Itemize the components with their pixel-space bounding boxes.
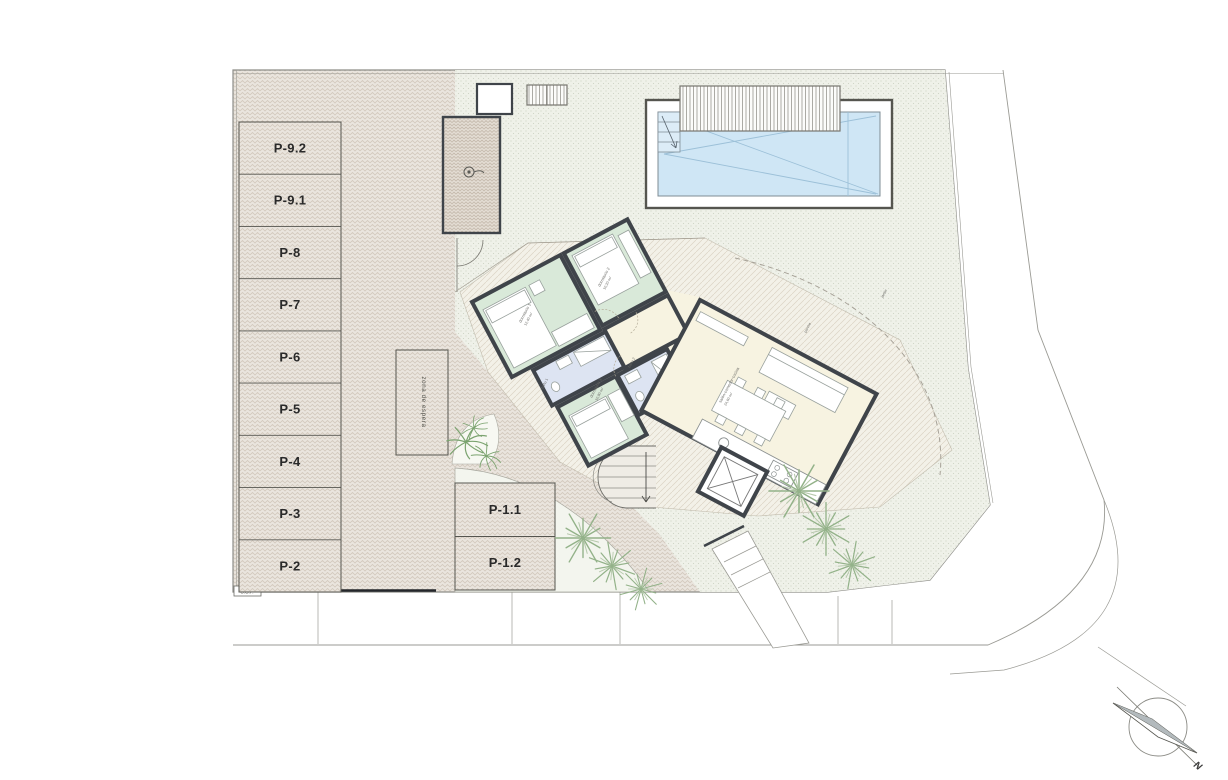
waiting-zone-label: zona de espera bbox=[420, 376, 427, 427]
site-plan-canvas: C.G.P. P-9.2 P-9.1 P-8 P-7 P-6 P-5 P-4 P… bbox=[0, 0, 1228, 780]
parking-island-block: P-1.1 P-1.2 bbox=[455, 483, 555, 590]
parking-stall-label: P-1.2 bbox=[489, 555, 522, 570]
utility-structure bbox=[477, 84, 512, 114]
parking-left-block: P-9.2 P-9.1 P-8 P-7 P-6 P-5 P-4 P-3 P-2 bbox=[239, 122, 341, 592]
parking-stall-label: P-4 bbox=[279, 454, 301, 469]
parking-stall-label: P-5 bbox=[279, 402, 300, 417]
storage-shed bbox=[443, 117, 500, 233]
pool bbox=[646, 86, 892, 208]
parking-stall-label: P-8 bbox=[279, 245, 300, 260]
site-plan-drawing: C.G.P. P-9.2 P-9.1 P-8 P-7 P-6 P-5 P-4 P… bbox=[0, 0, 1228, 780]
parking-stall-label: P-6 bbox=[279, 349, 300, 364]
parking-stall-label: P-2 bbox=[279, 558, 300, 573]
parking-stall-label: P-3 bbox=[279, 506, 300, 521]
pool-steps bbox=[658, 112, 680, 152]
parking-stall-label: P-9.1 bbox=[274, 193, 307, 208]
parking-stall-label: P-1.1 bbox=[489, 502, 522, 517]
pool-pergola bbox=[680, 86, 840, 131]
parking-stall-label: P-9.2 bbox=[274, 141, 307, 156]
parking-stall-label: P-7 bbox=[279, 297, 300, 312]
compass-rose: N bbox=[1113, 687, 1204, 773]
waiting-zone-box: zona de espera bbox=[396, 350, 448, 455]
